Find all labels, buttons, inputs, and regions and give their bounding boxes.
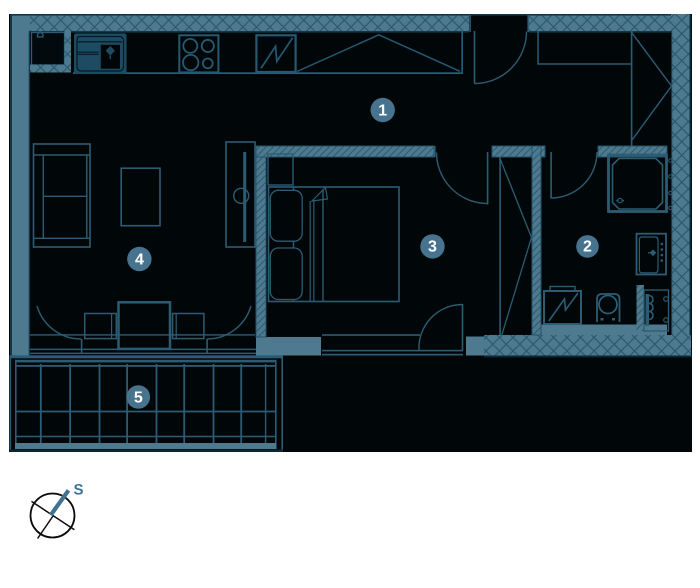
svg-text:1: 1	[378, 102, 387, 119]
svg-text:S: S	[73, 482, 83, 499]
svg-text:2: 2	[583, 239, 592, 256]
svg-text:4: 4	[135, 251, 144, 268]
svg-text:3: 3	[428, 239, 437, 256]
svg-text:5: 5	[134, 389, 143, 406]
